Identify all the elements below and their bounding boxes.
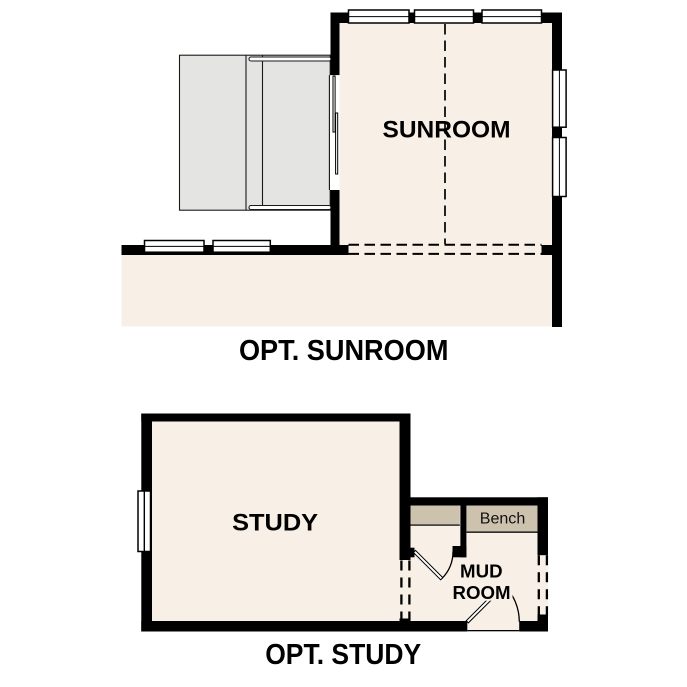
svg-text:STUDY: STUDY <box>232 510 318 537</box>
svg-text:Bench: Bench <box>480 511 526 528</box>
svg-text:SUNROOM: SUNROOM <box>383 117 511 144</box>
svg-text:ROOM: ROOM <box>453 582 511 603</box>
svg-text:OPT. STUDY: OPT. STUDY <box>265 639 421 671</box>
svg-text:OPT. SUNROOM: OPT. SUNROOM <box>239 335 449 367</box>
svg-text:MUD: MUD <box>460 560 503 581</box>
